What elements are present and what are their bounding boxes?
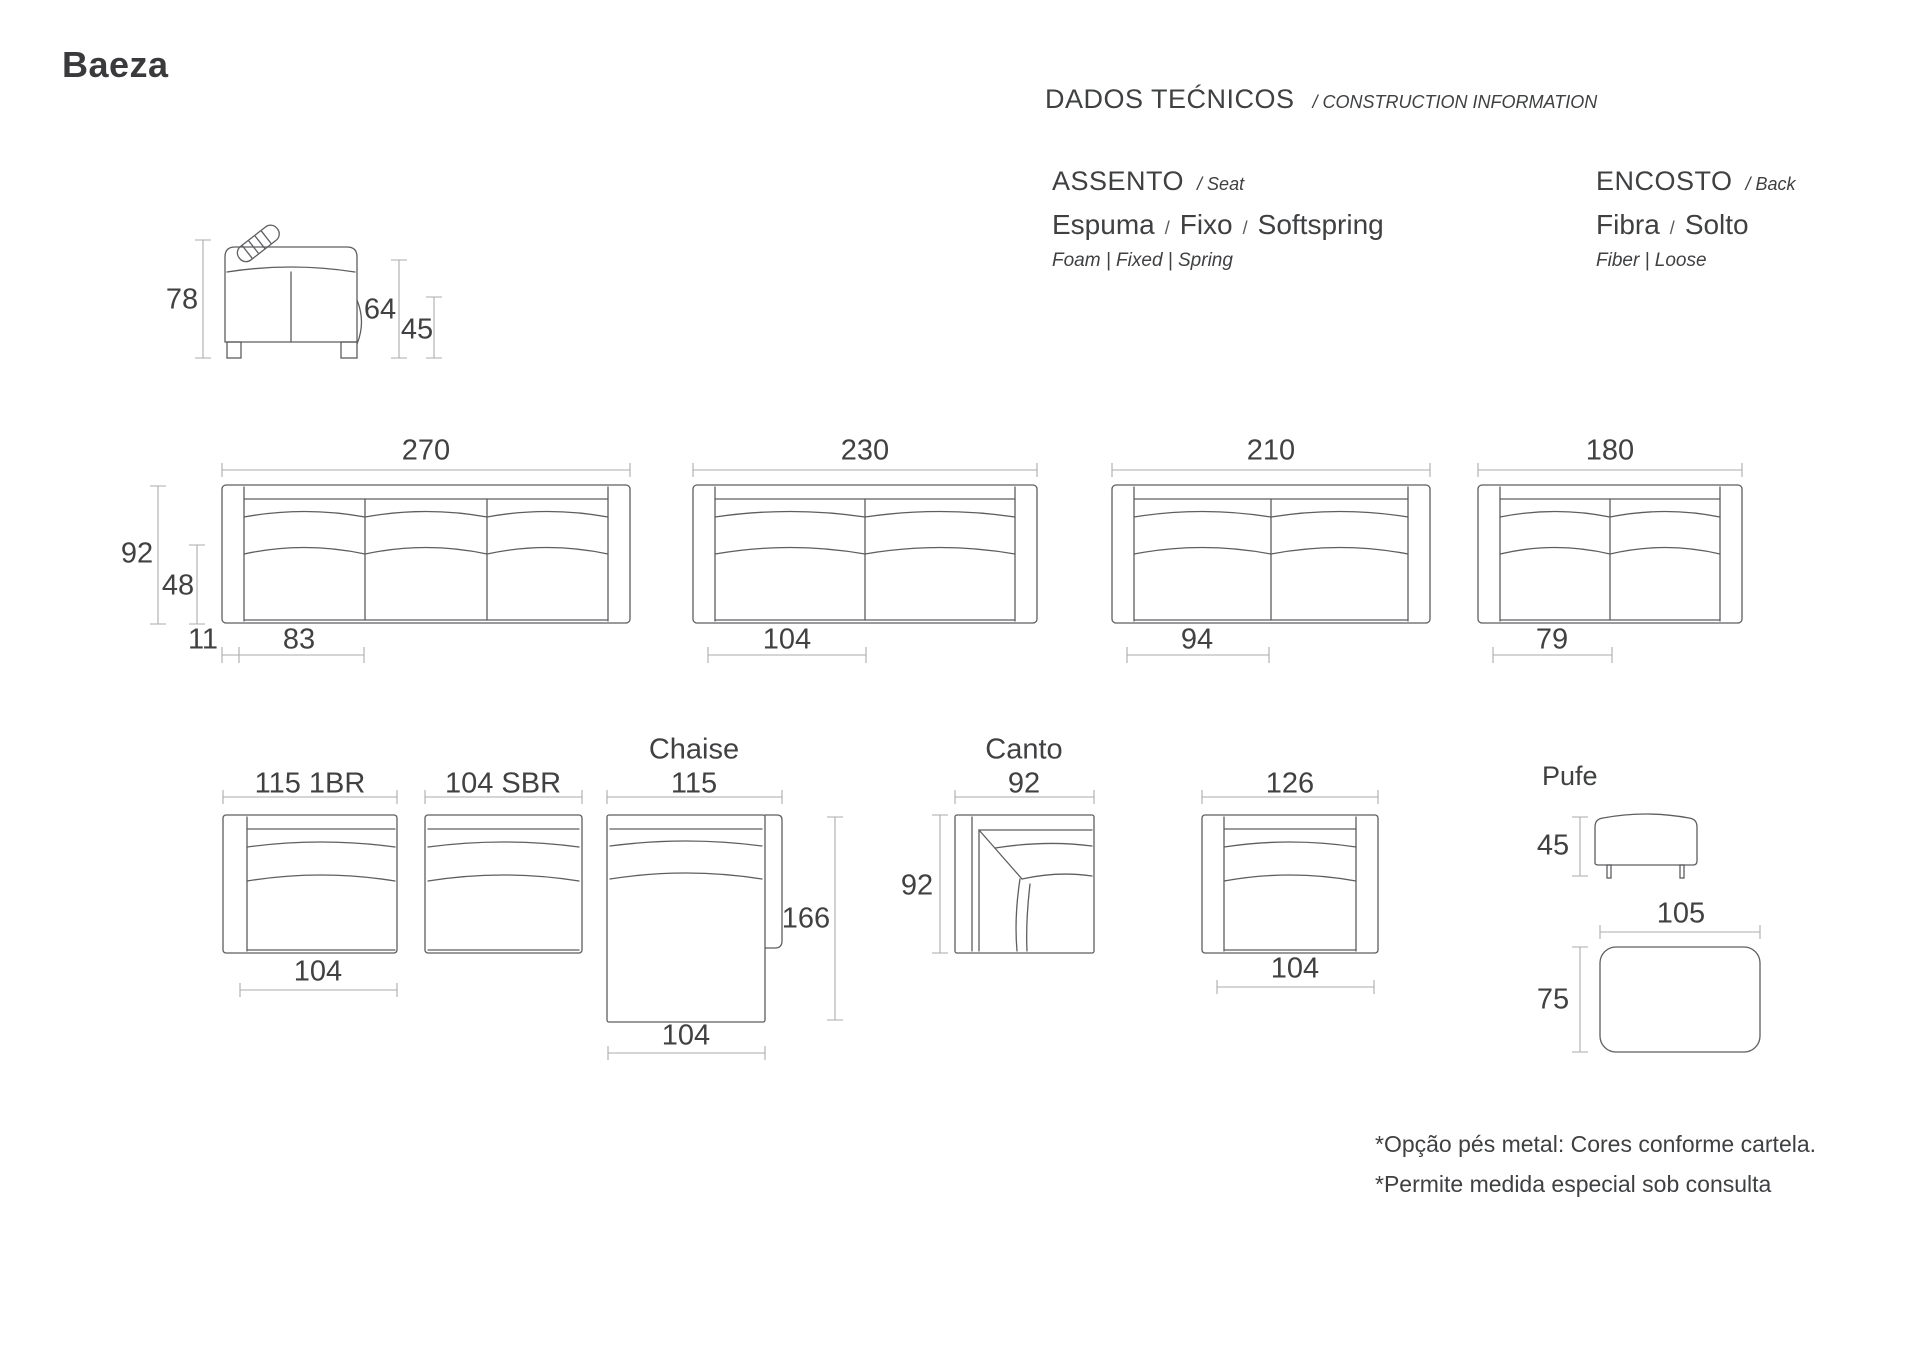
dim-label-64: 64 bbox=[364, 296, 396, 325]
module-sbr-label: 104 SBR bbox=[445, 770, 561, 799]
dim-label-11: 11 bbox=[188, 626, 218, 655]
slash-separator: / bbox=[1165, 218, 1170, 239]
pufe-title: Pufe bbox=[1542, 761, 1598, 792]
dim-label-chaise-115: 115 bbox=[671, 770, 717, 799]
seat-value-3: Softspring bbox=[1258, 209, 1384, 241]
dim-label-230: 230 bbox=[841, 437, 889, 466]
module-1br-label: 115 1BR bbox=[255, 770, 366, 799]
sofa-270-drawing bbox=[222, 485, 630, 623]
spec-sheet: Baeza DADOS TEĆNICOS / CONSTRUCTION INFO… bbox=[0, 0, 1920, 1357]
dim-label-94: 94 bbox=[1181, 626, 1213, 655]
chaise-drawing bbox=[607, 815, 782, 1022]
seat-value-2: Fixo bbox=[1180, 209, 1233, 241]
dim-label-126: 126 bbox=[1266, 770, 1314, 799]
dim-label-83: 83 bbox=[283, 626, 315, 655]
canto-title: Canto bbox=[985, 736, 1062, 765]
side-view-headrest bbox=[234, 222, 282, 265]
footnote-metal-feet: *Opção pés metal: Cores conforme cartela… bbox=[1375, 1131, 1816, 1158]
seat-spec-subtitle: Foam | Fixed | Spring bbox=[1052, 250, 1233, 272]
module-126-drawing bbox=[1202, 815, 1378, 953]
dim-label-270: 270 bbox=[402, 437, 450, 466]
pufe-front-drawing bbox=[1595, 814, 1697, 878]
chaise-title: Chaise bbox=[649, 736, 739, 765]
dim-line-pufe-75 bbox=[1572, 947, 1588, 1052]
side-view-drawing bbox=[225, 222, 362, 358]
dim-label-78: 78 bbox=[166, 286, 198, 315]
page-title: Baeza bbox=[62, 44, 169, 86]
dim-label-79: 79 bbox=[1536, 626, 1568, 655]
back-label-en: / Back bbox=[1746, 174, 1796, 195]
tech-info-header: DADOS TEĆNICOS / CONSTRUCTION INFORMATIO… bbox=[1045, 84, 1597, 115]
dim-label-166: 166 bbox=[782, 905, 830, 934]
seat-label-en: / Seat bbox=[1197, 174, 1244, 195]
dim-label-chaise-104: 104 bbox=[662, 1022, 710, 1051]
dim-label-45: 45 bbox=[401, 316, 433, 345]
back-value-2: Solto bbox=[1685, 209, 1749, 241]
dim-label-canto-92-left: 92 bbox=[901, 872, 933, 901]
back-label-pt: ENCOSTO bbox=[1596, 166, 1733, 197]
tech-info-title-pt: DADOS TEĆNICOS bbox=[1045, 84, 1295, 115]
dim-label-pufe-45: 45 bbox=[1537, 832, 1569, 861]
dim-label-pufe-75: 75 bbox=[1537, 986, 1569, 1015]
side-view-top-curve bbox=[227, 267, 355, 272]
back-value-1: Fibra bbox=[1596, 209, 1660, 241]
pufe-leg-right bbox=[1680, 865, 1684, 878]
back-spec-subtitle: Fiber | Loose bbox=[1596, 250, 1707, 272]
dim-label-92: 92 bbox=[121, 540, 153, 569]
seat-value-1: Espuma bbox=[1052, 209, 1155, 241]
dim-label-canto-92-top: 92 bbox=[1008, 770, 1040, 799]
tech-info-title-en: / CONSTRUCTION INFORMATION bbox=[1313, 92, 1598, 113]
dim-label-104-sofa230: 104 bbox=[763, 626, 811, 655]
seat-label-pt: ASSENTO bbox=[1052, 166, 1184, 197]
seat-spec-header: ASSENTO / Seat bbox=[1052, 166, 1244, 197]
sofa-210-drawing bbox=[1112, 485, 1430, 623]
seat-spec-values: Espuma / Fixo / Softspring bbox=[1052, 209, 1384, 241]
footnote-special-size: *Permite medida especial sob consulta bbox=[1375, 1171, 1771, 1198]
slash-separator: / bbox=[1670, 218, 1675, 239]
dim-label-180: 180 bbox=[1586, 437, 1634, 466]
side-view-leg-right bbox=[341, 342, 357, 358]
side-view-arm-curve bbox=[357, 300, 362, 344]
dim-label-210: 210 bbox=[1247, 437, 1295, 466]
dim-label-126-104: 104 bbox=[1271, 955, 1319, 984]
canto-drawing bbox=[955, 815, 1094, 953]
back-spec-header: ENCOSTO / Back bbox=[1596, 166, 1796, 197]
dim-line-pufe-45 bbox=[1572, 817, 1588, 876]
pufe-leg-left bbox=[1607, 865, 1611, 878]
sofa-180-drawing bbox=[1478, 485, 1742, 623]
dim-label-pufe-105: 105 bbox=[1657, 900, 1705, 929]
module-sbr-drawing bbox=[425, 815, 582, 953]
sofa-230-drawing bbox=[693, 485, 1037, 623]
pufe-top-drawing bbox=[1600, 947, 1760, 1052]
slash-separator: / bbox=[1243, 218, 1248, 239]
dim-label-1br-104: 104 bbox=[294, 958, 342, 987]
row1-dims bbox=[150, 463, 1742, 663]
dim-line-canto-92-left bbox=[932, 815, 948, 953]
dim-label-48: 48 bbox=[162, 572, 194, 601]
module-1br-drawing bbox=[223, 815, 397, 953]
back-spec-values: Fibra / Solto bbox=[1596, 209, 1749, 241]
side-view-leg-left bbox=[227, 342, 241, 358]
